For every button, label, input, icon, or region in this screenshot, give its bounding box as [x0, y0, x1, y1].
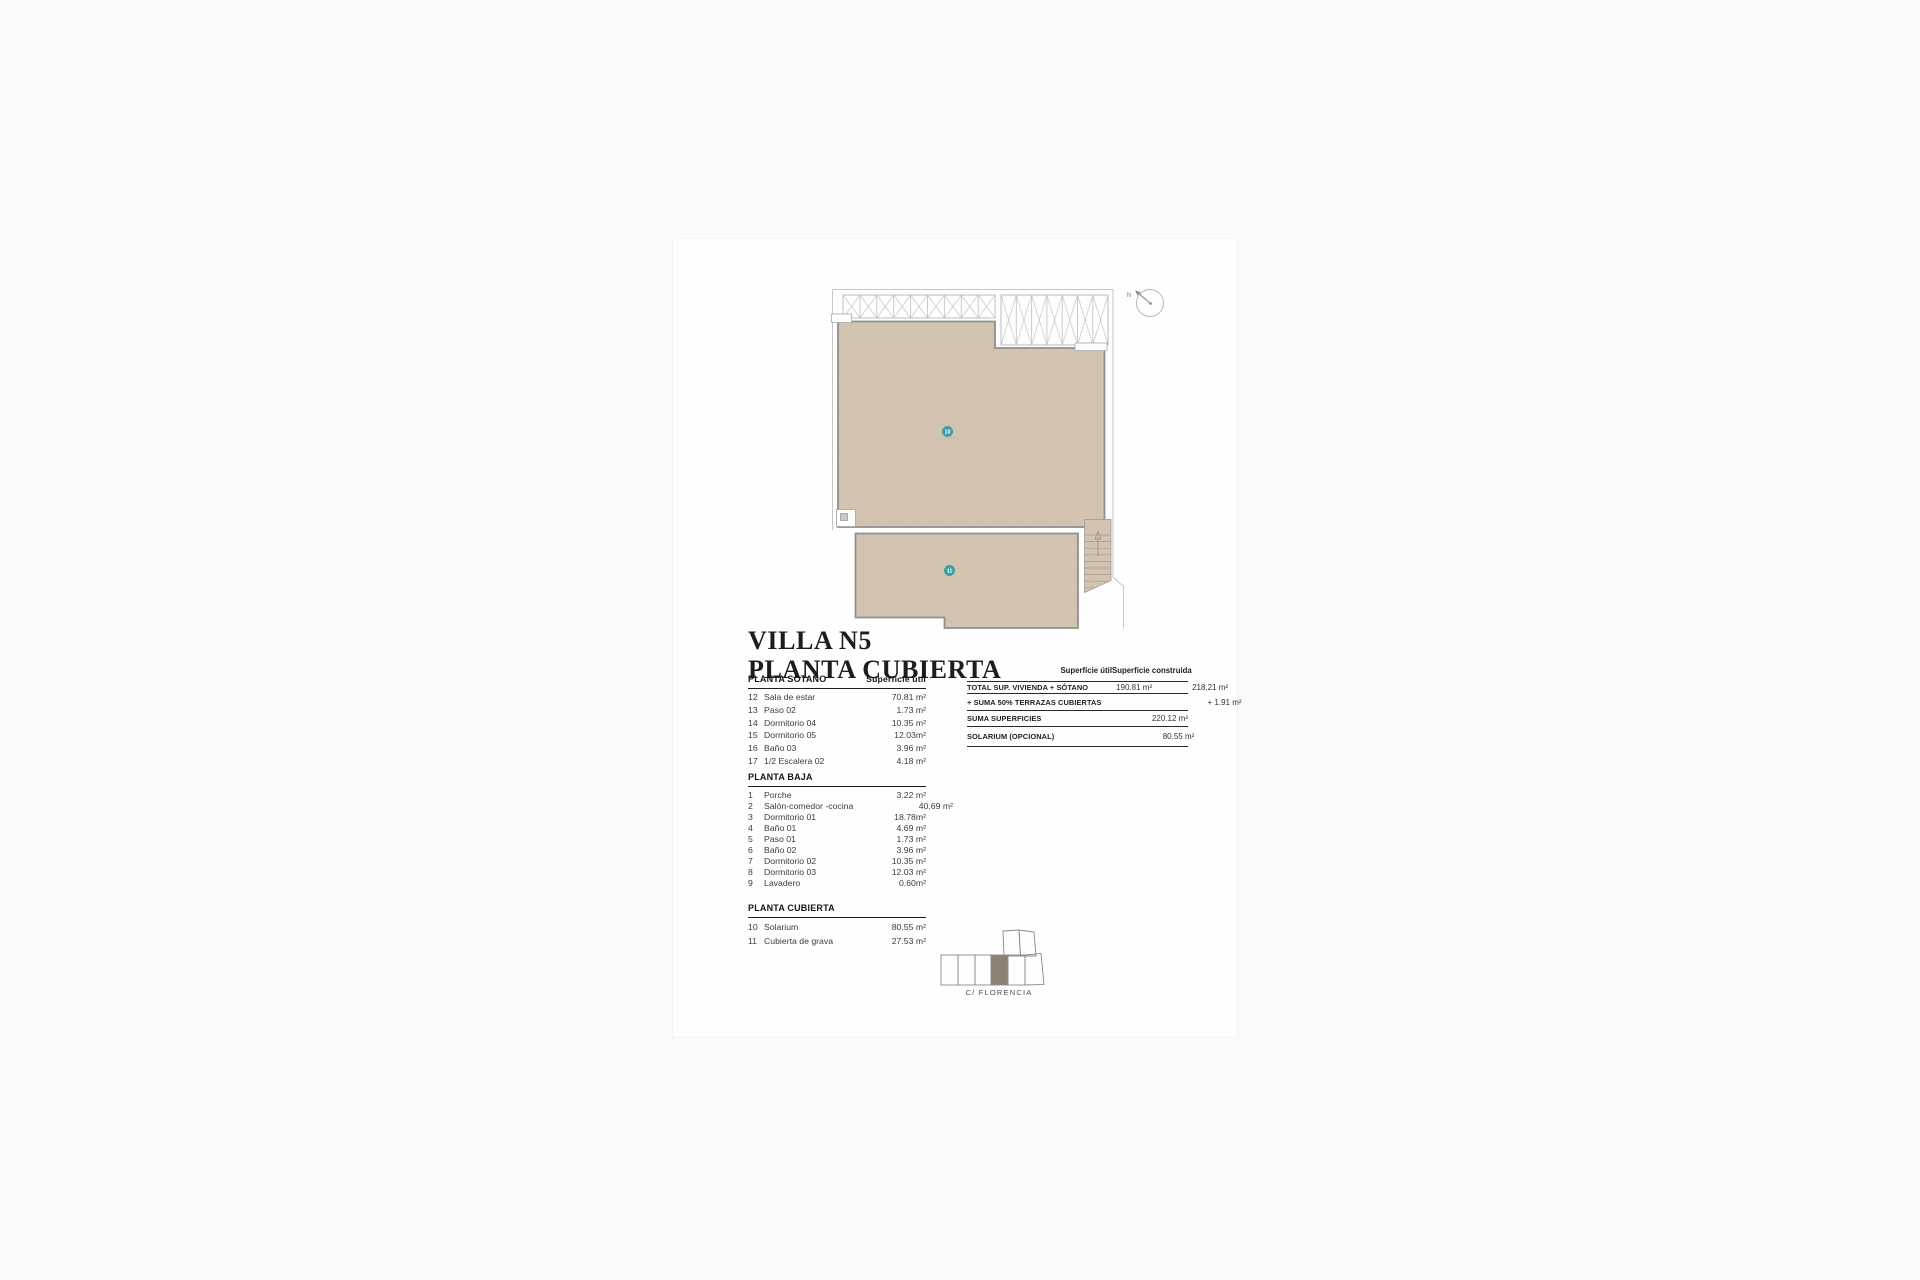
row-num: 5: [748, 834, 764, 844]
row-label: 1/2 Escalera 02: [764, 756, 897, 766]
row-label: Dormitorio 02: [764, 856, 892, 866]
site-plot: [1003, 930, 1021, 956]
row-value: 18.78m²: [894, 812, 926, 822]
section-planta-baja: PLANTA BAJA 1 Porche 3.22 m² 2 Salón-com…: [748, 772, 926, 889]
summary-header-row: Superficie útil Superficie construida: [967, 666, 1188, 682]
row-label: Baño 03: [764, 743, 897, 753]
row-num: 15: [748, 730, 764, 740]
row-value: 12.03m²: [894, 730, 926, 740]
gravel-roof-area: [856, 534, 1079, 629]
row-label: + SUMA 50% TERRAZAS CUBIERTAS: [967, 698, 1102, 707]
table-row: 8 Dormitorio 03 12.03 m²: [748, 867, 926, 878]
row-value: 4.69 m²: [897, 823, 926, 833]
table-row: 6 Baño 02 3.96 m²: [748, 845, 926, 856]
room-areas-table: PLANTA SÓTANO Superficie útil 12 Sala de…: [748, 674, 926, 948]
row-num: 2: [748, 801, 764, 811]
row-num: 11: [748, 936, 764, 946]
row-util-value: 190.81 m²: [1088, 683, 1152, 692]
column-header-superficie-util: Superficie útil: [866, 674, 926, 684]
roof-drain-symbol: [837, 510, 856, 527]
row-value: 4.18 m²: [897, 756, 926, 766]
summary-row-suma: SUMA SUPERFICIES 220.12 m²: [967, 711, 1188, 727]
room-label-10: 10: [942, 426, 953, 437]
row-num: 7: [748, 856, 764, 866]
row-construida-value: 220.12 m²: [1112, 714, 1188, 723]
row-label: Solarium: [764, 922, 892, 932]
summary-row-solarium: SOLARIUM (OPCIONAL) 80.55 m²: [967, 727, 1188, 747]
wall-notch-left: [832, 314, 852, 323]
row-num: 12: [748, 692, 764, 702]
row-num: 14: [748, 718, 764, 728]
room-label-11: 11: [944, 565, 955, 576]
row-value: 70.81 m²: [892, 692, 926, 702]
row-value: 0.60m²: [899, 878, 926, 888]
site-plot-highlighted: [991, 955, 1008, 985]
summary-row-terrazas: + SUMA 50% TERRAZAS CUBIERTAS + 1.91 m²: [967, 694, 1188, 711]
wall-notch-right: [1075, 343, 1107, 351]
section-title: PLANTA CUBIERTA: [748, 903, 835, 913]
site-plot: [941, 955, 958, 985]
stairs: [1085, 520, 1112, 593]
site-plot: [975, 955, 991, 985]
site-location-map: C/ FLORENCIA: [930, 920, 1055, 1005]
row-label: Dormitorio 01: [764, 812, 894, 822]
row-label: Salón-comedor -cocina: [764, 801, 919, 811]
row-num: 6: [748, 845, 764, 855]
table-row: 14 Dormitorio 04 10.35 m²: [748, 716, 926, 729]
row-label: Lavadero: [764, 878, 899, 888]
table-row: 2 Salón-comedor -cocina 40.69 m²: [748, 800, 926, 811]
section-header: PLANTA CUBIERTA: [748, 903, 926, 918]
row-label: Dormitorio 05: [764, 730, 894, 740]
column-header-superficie-construida: Superficie construida: [1112, 666, 1188, 675]
row-num: 13: [748, 705, 764, 715]
solarium-area: [838, 322, 1105, 528]
table-row: 4 Baño 01 4.69 m²: [748, 822, 926, 833]
table-row: 13 Paso 02 1.73 m²: [748, 704, 926, 717]
table-row: 3 Dormitorio 01 18.78m²: [748, 811, 926, 822]
drawing-sheet-canvas: 10 11 N VILLA N5 PLANTA CUBIERTA PLANTA …: [0, 0, 1920, 1280]
site-plot: [1025, 954, 1044, 986]
section-planta-sotano: PLANTA SÓTANO Superficie útil 12 Sala de…: [748, 674, 926, 767]
site-plot: [1019, 930, 1036, 956]
row-label: Paso 02: [764, 705, 897, 715]
section-planta-cubierta: PLANTA CUBIERTA 10 Solarium 80.55 m² 11 …: [748, 903, 926, 948]
row-value: 80.55 m²: [892, 922, 926, 932]
table-row: 16 Baño 03 3.96 m²: [748, 742, 926, 755]
table-row: 12 Sala de estar 70.81 m²: [748, 691, 926, 704]
row-label: Paso 01: [764, 834, 897, 844]
table-row: 1 Porche 3.22 m²: [748, 789, 926, 800]
row-value: 10.35 m²: [892, 718, 926, 728]
column-header-superficie-util: Superficie útil: [1048, 666, 1112, 675]
section-title: PLANTA SÓTANO: [748, 674, 826, 684]
row-value: 3.22 m²: [897, 790, 926, 800]
section-title: PLANTA BAJA: [748, 772, 813, 782]
row-construida-value: + 1.91 m²: [1166, 698, 1242, 707]
row-num: 10: [748, 922, 764, 932]
row-num: 1: [748, 790, 764, 800]
page-title-line1: VILLA N5: [748, 626, 1001, 655]
street-label: C/ FLORENCIA: [966, 988, 1033, 997]
summary-row-total: TOTAL SUP. VIVIENDA + SÓTANO 190.81 m² 2…: [967, 682, 1188, 694]
row-label: Baño 02: [764, 845, 897, 855]
table-row: 17 1/2 Escalera 02 4.18 m²: [748, 754, 926, 767]
section-header: PLANTA SÓTANO Superficie útil: [748, 674, 926, 689]
row-num: 8: [748, 867, 764, 877]
table-row: 15 Dormitorio 05 12.03m²: [748, 729, 926, 742]
north-compass-icon: N: [1127, 290, 1164, 317]
row-value: 10.35 m²: [892, 856, 926, 866]
table-row: 10 Solarium 80.55 m²: [748, 920, 926, 934]
table-row: 7 Dormitorio 02 10.35 m²: [748, 856, 926, 867]
row-label: Dormitorio 04: [764, 718, 892, 728]
row-label: Porche: [764, 790, 897, 800]
row-label: SUMA SUPERFICIES: [967, 714, 1048, 723]
row-value: 1.73 m²: [897, 834, 926, 844]
room-label-10-text: 10: [945, 430, 951, 436]
row-label: Baño 01: [764, 823, 897, 833]
section-header: PLANTA BAJA: [748, 772, 926, 787]
floor-plan-drawing: 10 11 N: [815, 275, 1180, 640]
row-num: 16: [748, 743, 764, 753]
row-value: 27.53 m²: [892, 936, 926, 946]
table-row: 5 Paso 01 1.73 m²: [748, 834, 926, 845]
row-construida-value: 80.55 m²: [1118, 732, 1194, 741]
row-label: Cubierta de grava: [764, 936, 892, 946]
surface-summary-table: Superficie útil Superficie construida TO…: [967, 666, 1188, 747]
row-value: 3.96 m²: [897, 845, 926, 855]
compass-n-text: N: [1127, 293, 1131, 299]
row-label: Sala de estar: [764, 692, 892, 702]
table-row: 9 Lavadero 0.60m²: [748, 878, 926, 889]
row-num: 3: [748, 812, 764, 822]
site-plot: [958, 955, 975, 985]
table-row: 11 Cubierta de grava 27.53 m²: [748, 934, 926, 948]
row-construida-value: 218.21 m²: [1152, 683, 1228, 692]
row-num: 4: [748, 823, 764, 833]
room-label-11-text: 11: [947, 569, 953, 575]
row-num: 9: [748, 878, 764, 888]
row-num: 17: [748, 756, 764, 766]
row-label: Dormitorio 03: [764, 867, 892, 877]
row-value: 1.73 m²: [897, 705, 926, 715]
row-label: TOTAL SUP. VIVIENDA + SÓTANO: [967, 683, 1088, 692]
site-plot: [1008, 955, 1025, 985]
row-value: 3.96 m²: [897, 743, 926, 753]
row-label: SOLARIUM (OPCIONAL): [967, 732, 1054, 741]
row-value: 12.03 m²: [892, 867, 926, 877]
row-value: 40.69 m²: [919, 801, 953, 811]
